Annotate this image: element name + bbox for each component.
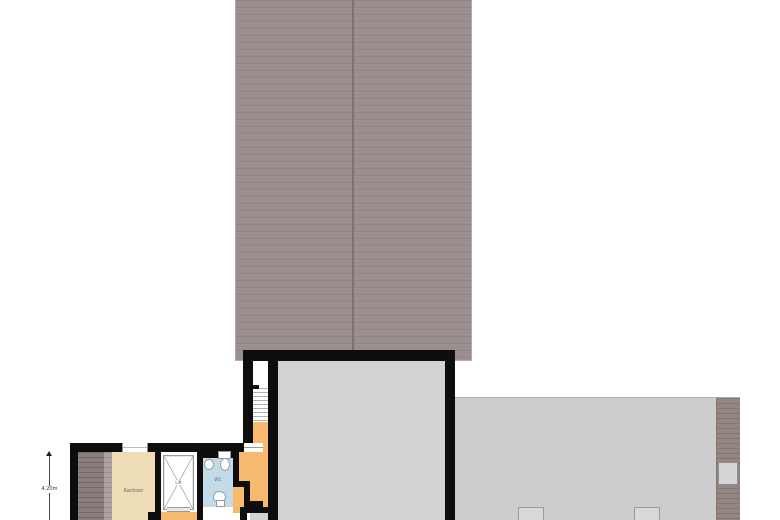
adjacent-roof-edge: [716, 398, 740, 520]
stair-landing: [253, 422, 268, 443]
main-room-floor: [278, 361, 445, 520]
elevator-shaft: Lift: [163, 455, 194, 510]
room-below-hall: [250, 513, 268, 520]
staircase-treads: [253, 388, 268, 422]
wall-office-foot: [148, 512, 161, 520]
elevator-label: Lift: [164, 480, 193, 486]
floor-plan-canvas: Kantoor Lift WC 4.20m: [0, 0, 780, 520]
adjacent-flat-roof: [453, 397, 740, 520]
wc-toilet-upper-bowl: [220, 458, 230, 471]
office-label: Kantoor: [112, 488, 155, 494]
roof-ridge-line: [352, 0, 354, 361]
office-room: [112, 452, 155, 520]
wc-sink: [204, 459, 214, 470]
hall-door-threshold: [244, 443, 263, 452]
wc-label: WC: [203, 478, 233, 484]
wall-wc-east-upper: [233, 452, 239, 481]
wall-wc-east-lower: [244, 487, 250, 501]
window-top: [122, 443, 148, 452]
wall-main-right: [445, 350, 455, 520]
stairs-edge-highlight: [104, 452, 112, 520]
hallway-by-elevator: [161, 512, 197, 520]
skylight-2: [634, 507, 660, 520]
wall-stairwell-right: [268, 350, 278, 520]
wc-toilet-lower-tank: [216, 500, 225, 507]
dimension-label: 4.20m: [34, 486, 65, 493]
roof-window-right: [718, 462, 738, 485]
wall-lower-left: [70, 443, 78, 520]
wall-hall-bottom-corner: [240, 507, 247, 520]
skylight-1: [518, 507, 544, 520]
stair-rail-mark: [253, 385, 259, 389]
dimension-arrow-up-icon: [46, 451, 52, 456]
wall-main-left: [243, 350, 253, 447]
